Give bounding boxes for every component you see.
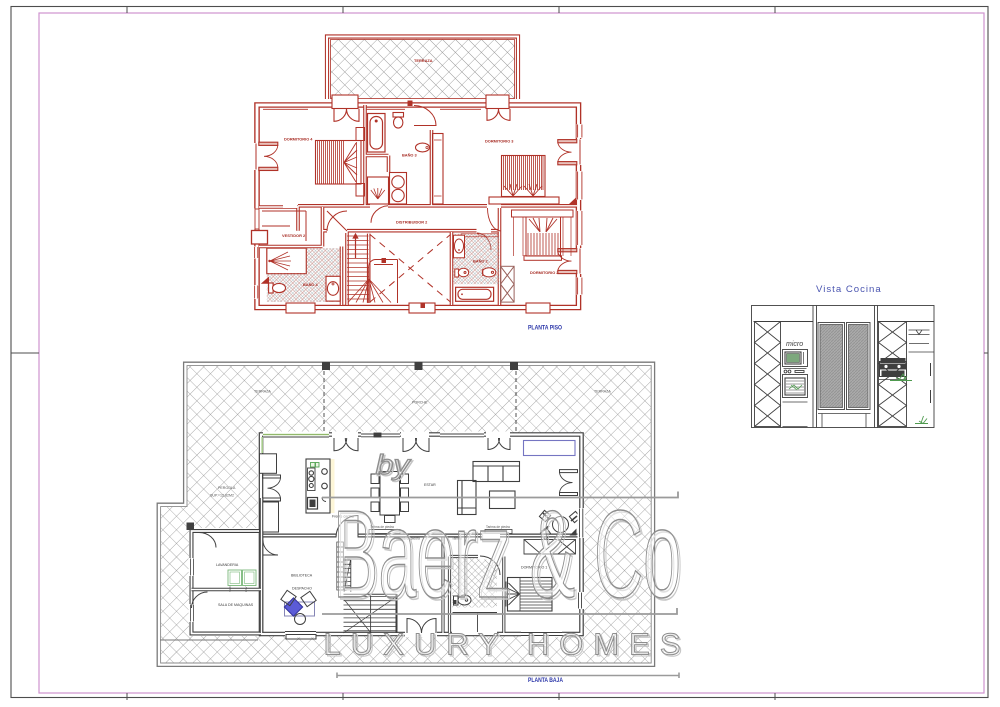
svg-text:PERGOLA: PERGOLA (218, 486, 236, 490)
svg-text:DISTRIBUIDOR 2: DISTRIBUIDOR 2 (396, 219, 428, 224)
svg-text:SUP.=12.82M2: SUP.=12.82M2 (210, 493, 234, 497)
svg-text:LAVANDERIA: LAVANDERIA (216, 563, 239, 567)
svg-text:DORMITORIO 3: DORMITORIO 3 (485, 139, 514, 144)
svg-text:LAV: LAV (244, 585, 248, 592)
svg-text:TERRAZA: TERRAZA (594, 389, 611, 393)
svg-text:PORCHE: PORCHE (412, 400, 428, 404)
svg-text:SEC: SEC (228, 585, 232, 592)
svg-text:by: by (376, 449, 412, 480)
svg-text:DORMITORIO 4: DORMITORIO 4 (284, 137, 313, 142)
svg-text:SALA DE MAQUINAS: SALA DE MAQUINAS (218, 603, 254, 607)
svg-text:Vista Cocina: Vista Cocina (816, 284, 882, 295)
svg-text:DORMITORIO 2: DORMITORIO 2 (530, 270, 559, 275)
svg-text:DESPACHO: DESPACHO (292, 587, 312, 591)
svg-text:PLANTA PISO: PLANTA PISO (528, 326, 562, 332)
svg-text:TERRAZA: TERRAZA (254, 389, 271, 393)
svg-text:VESTIDOR 2: VESTIDOR 2 (282, 233, 306, 238)
svg-text:BIBLIOTECA: BIBLIOTECA (291, 573, 313, 577)
svg-text:BAÑO 3: BAÑO 3 (402, 153, 418, 158)
svg-text:Baerz & Co: Baerz & Co (333, 486, 681, 624)
svg-text:BAÑO 2: BAÑO 2 (473, 258, 489, 263)
svg-text:micro: micro (786, 341, 803, 348)
svg-text:TERRAZA: TERRAZA (414, 58, 433, 63)
svg-text:PLANTA BAJA: PLANTA BAJA (528, 678, 564, 684)
svg-text:BAÑO 4: BAÑO 4 (303, 282, 319, 287)
